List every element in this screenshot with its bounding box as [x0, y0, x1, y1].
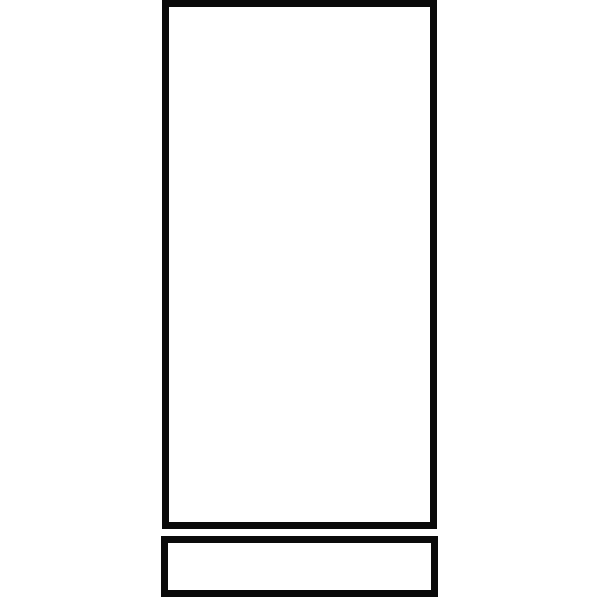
small-horizontal-rectangle [161, 536, 438, 597]
large-vertical-rectangle [162, 0, 437, 529]
drawing-canvas [0, 0, 600, 600]
